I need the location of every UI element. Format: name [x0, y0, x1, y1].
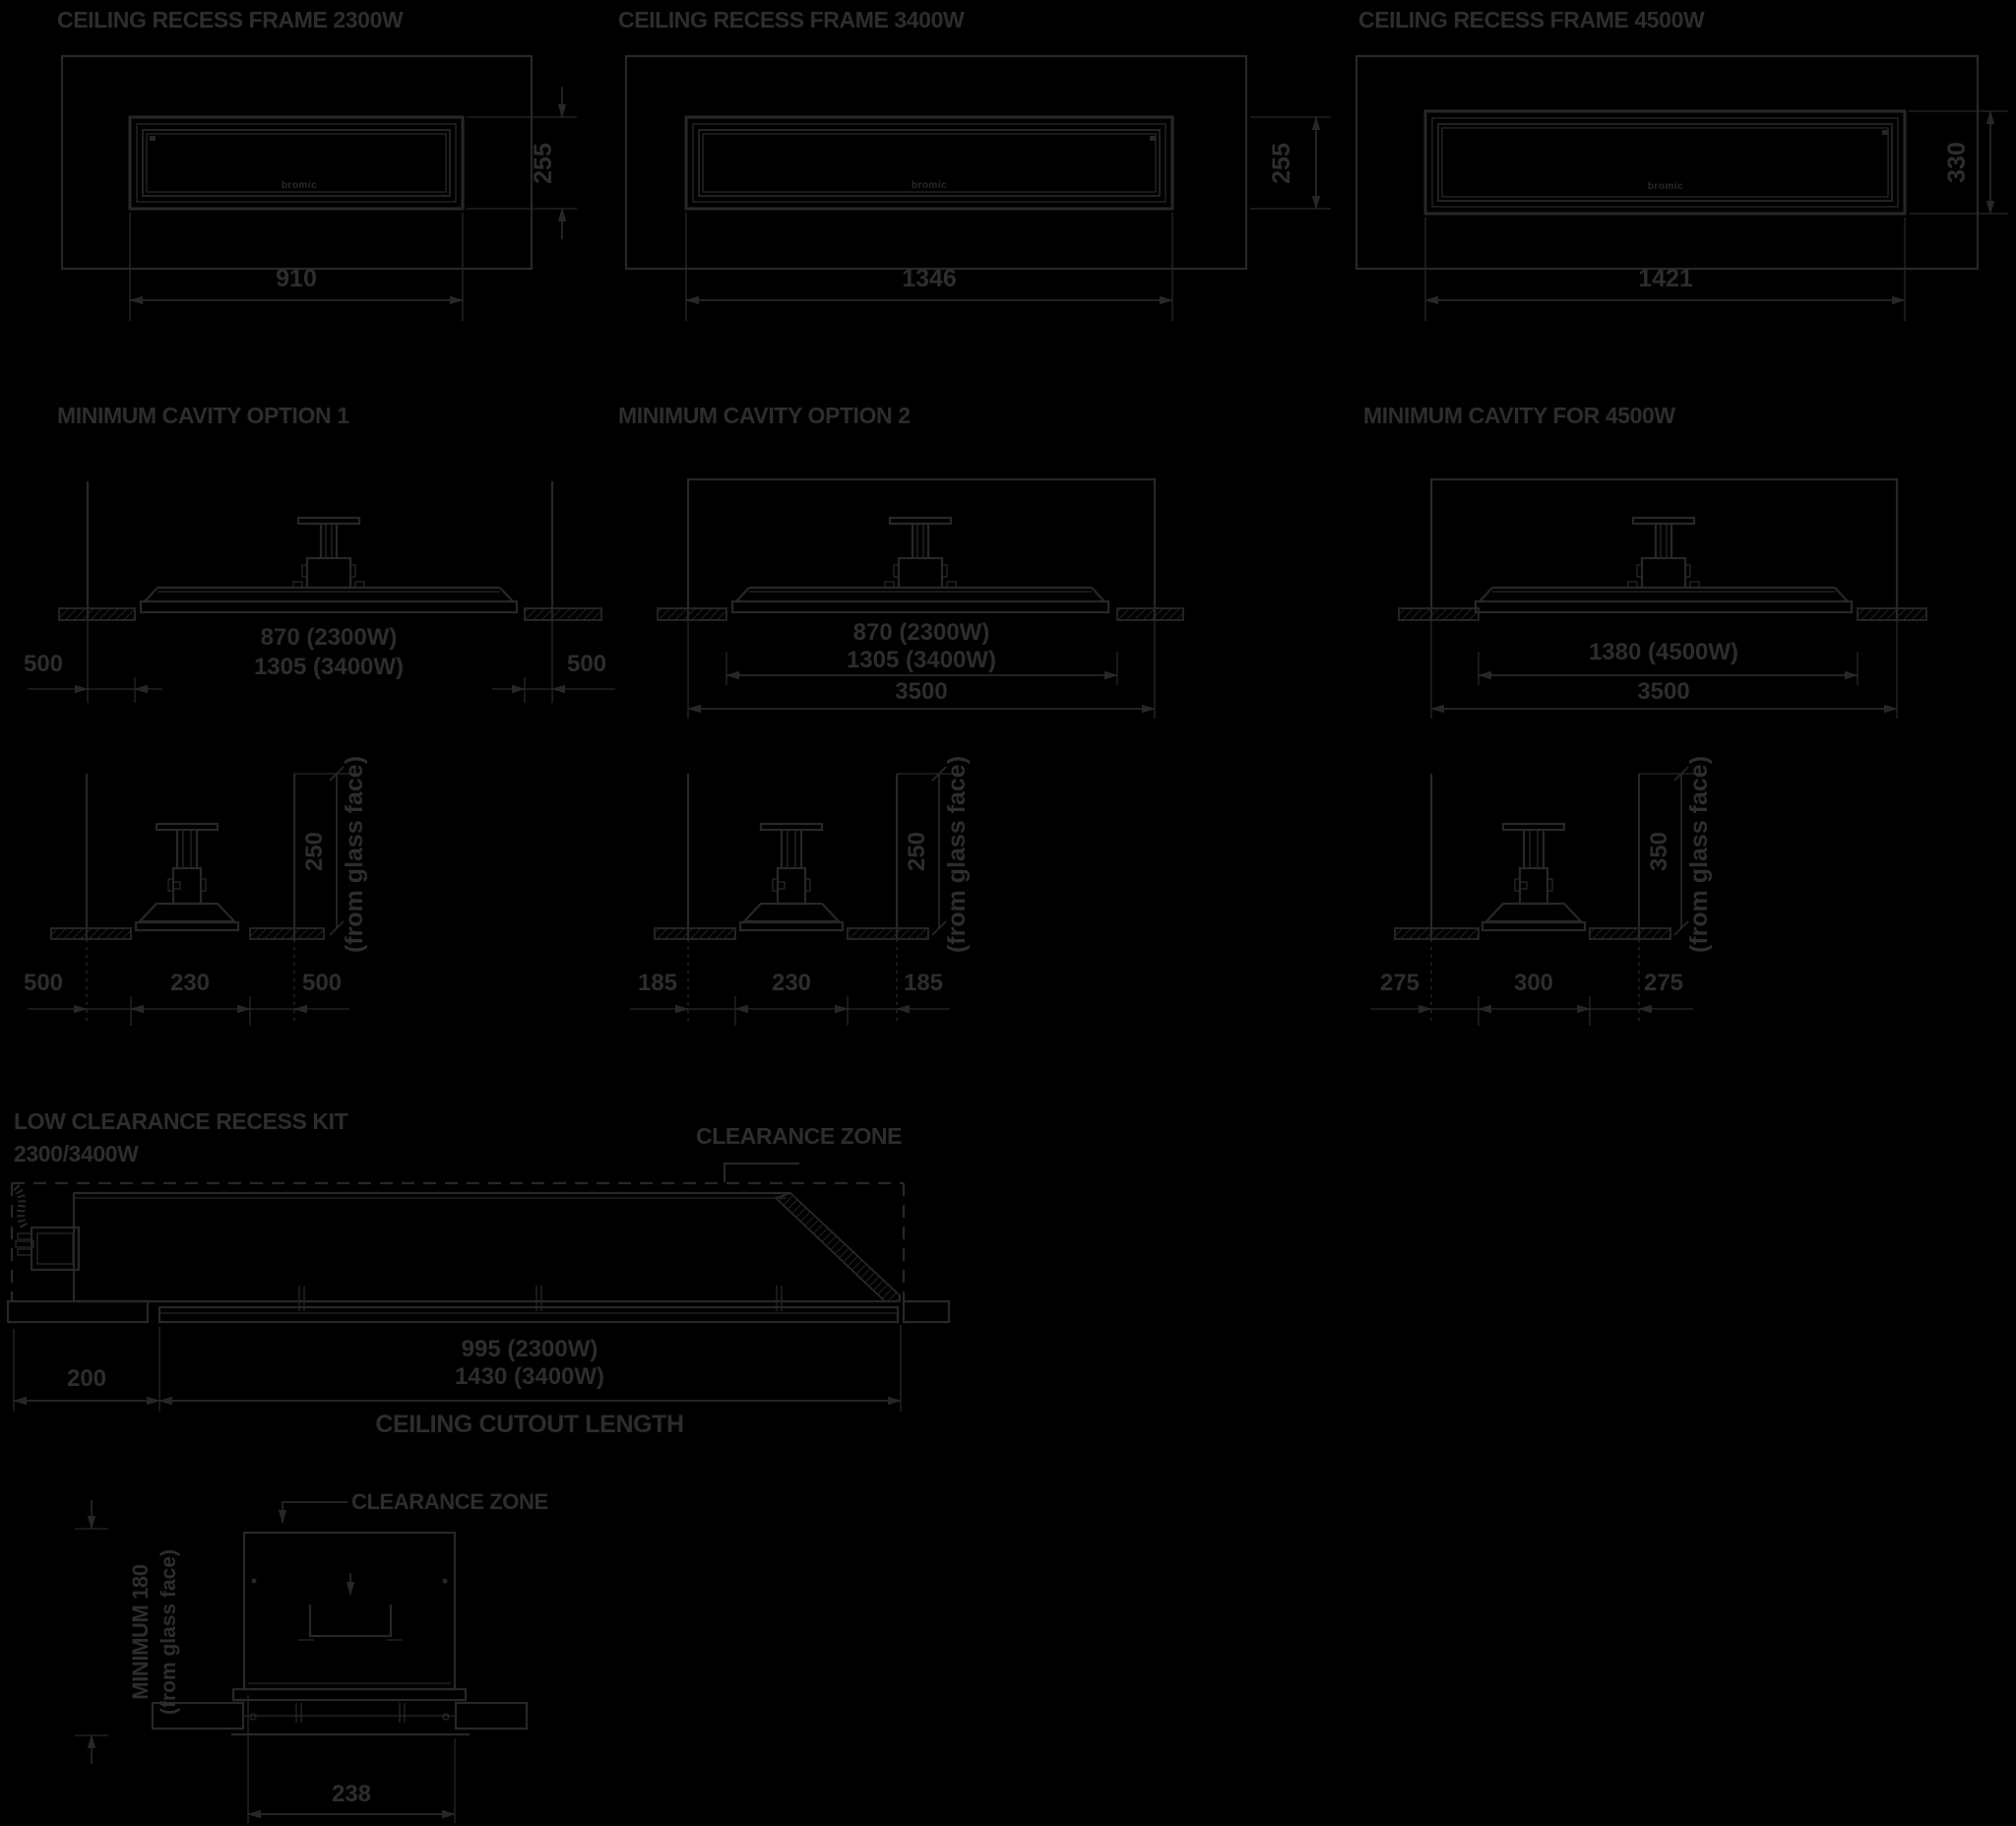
frame-2300-title: CEILING RECESS FRAME 2300W [57, 7, 404, 32]
end-3-right-dim: 275 [1644, 970, 1683, 996]
ceiling-slab [658, 608, 726, 620]
min-height-note: (from glass face) [157, 1549, 180, 1715]
heater-side-outline [141, 518, 517, 612]
cutout-length-b: 1430 (3400W) [455, 1363, 604, 1390]
ceiling-slab [59, 608, 135, 620]
end-3-left-dim: 275 [1380, 970, 1419, 996]
ceiling-slab [8, 1301, 148, 1322]
ceiling-slab [525, 608, 601, 620]
low-clearance-side-view: LOW CLEARANCE RECESS KIT 2300/3400W CLEA… [8, 1108, 949, 1438]
low-clearance-title-line2: 2300/3400W [14, 1141, 139, 1166]
heater-side-outline [1476, 518, 1852, 612]
cavity-box [688, 479, 1155, 620]
bottom-flange [233, 1689, 466, 1700]
end-3-depth-note: (from glass face) [1685, 756, 1713, 953]
ceiling-slab [1117, 608, 1183, 620]
frame-4500-ceiling-panel [1356, 56, 1978, 269]
end-1-middle-dim: 230 [170, 970, 210, 996]
cavity-4500w: MINIMUM CAVITY FOR 4500W 1380 (4500W) 35… [1363, 403, 1926, 719]
recess-enclosure [244, 1533, 455, 1689]
cavity-2-total-dim: 3500 [895, 678, 947, 705]
heater-end-outline [740, 824, 843, 930]
low-clearance-cross-section: CLEARANCE ZONE MINIMUM 180 (from glass f… [75, 1489, 548, 1823]
frame-4500-height-dim: 330 [1943, 142, 1971, 183]
frame-4500-width-dim: 1421 [1638, 265, 1693, 292]
brand-logo: bromic [912, 180, 947, 191]
mount-channel [310, 1605, 391, 1636]
end-3-middle-dim: 300 [1514, 970, 1553, 996]
frame-2300-ceiling-panel [62, 56, 532, 269]
cavity-1-length-a: 870 (2300W) [261, 624, 398, 651]
brand-logo: bromic [1648, 181, 1683, 192]
cavity-box [1431, 479, 1897, 620]
cavity-1-length-b: 1305 (3400W) [254, 654, 404, 680]
heater-side-outline [732, 518, 1108, 612]
cable-gland [18, 1233, 31, 1239]
cavity-2-length-a: 870 (2300W) [853, 619, 990, 646]
end-2-depth-dim: 250 [904, 832, 930, 871]
cavity-1-left-dim: 500 [24, 651, 63, 677]
heater-end-outline [1482, 824, 1585, 930]
indicator-dot [1882, 130, 1888, 135]
cavity-1-title: MINIMUM CAVITY OPTION 1 [57, 403, 349, 428]
end-view-4500w: 350 (from glass face) 275 300 275 [1370, 756, 1713, 1026]
ceiling-slab [1590, 928, 1670, 939]
flex-conduit [16, 1187, 26, 1228]
frame-3400-title: CEILING RECESS FRAME 3400W [618, 7, 965, 32]
end-2-left-dim: 185 [638, 970, 677, 996]
end-2-middle-dim: 230 [772, 970, 811, 996]
ceiling-slab [655, 928, 735, 939]
end-2-depth-note: (from glass face) [943, 756, 971, 953]
end-1-left-dim: 500 [24, 970, 63, 996]
end-3-depth-dim: 350 [1646, 832, 1672, 871]
ceiling-slab [1858, 608, 1926, 620]
indicator-dot [1150, 136, 1156, 141]
end-2-right-dim: 185 [904, 970, 943, 996]
end-view-option-2: 250 (from glass face) 185 230 185 [630, 756, 971, 1026]
ceiling-slab [51, 928, 131, 939]
low-clearance-title-line1: LOW CLEARANCE RECESS KIT [14, 1108, 348, 1134]
frame-diagram-3400w: CEILING RECESS FRAME 3400W bromic 255 13… [618, 7, 1331, 321]
ceiling-slab [848, 928, 928, 939]
cavity-option-2: MINIMUM CAVITY OPTION 2 870 (2300W) 1305… [618, 403, 1183, 719]
ceiling-slab [250, 928, 324, 939]
frame-3400-ceiling-panel [626, 56, 1246, 269]
end-view-option-1: 250 (from glass face) 500 230 500 [24, 756, 368, 1026]
brand-logo: bromic [282, 180, 317, 191]
clearance-zone-leader [283, 1502, 347, 1523]
ceiling-slab [1395, 928, 1479, 939]
clearance-zone-label-2: CLEARANCE ZONE [351, 1489, 548, 1514]
frame-3400-height-dim: 255 [1268, 143, 1295, 184]
frame-2300-height-dim: 255 [530, 143, 557, 184]
ceiling-slab [456, 1703, 527, 1729]
cutout-label: CEILING CUTOUT LENGTH [375, 1411, 683, 1438]
cavity-1-right-dim: 500 [567, 651, 606, 677]
frame-4500-title: CEILING RECESS FRAME 4500W [1358, 7, 1705, 32]
ceiling-slab [904, 1301, 949, 1322]
ceiling-slab [1399, 608, 1479, 620]
glass-face [159, 1307, 898, 1322]
cutout-length-a: 995 (2300W) [462, 1336, 598, 1362]
frame-2300-width-dim: 910 [276, 265, 317, 292]
end-1-right-dim: 500 [302, 970, 342, 996]
heater-end-outline [136, 824, 238, 930]
sloped-end [776, 1193, 900, 1301]
glass-face [243, 1700, 456, 1716]
frame-3400-width-dim: 1346 [902, 265, 957, 292]
cavity-3-length-a: 1380 (4500W) [1589, 639, 1738, 665]
section-markings [296, 1703, 405, 1723]
indicator-dot [150, 136, 156, 141]
frame-diagram-2300w: CEILING RECESS FRAME 2300W bromic 255 91… [57, 7, 577, 321]
cavity-3-total-dim: 3500 [1637, 678, 1689, 705]
cavity-3-title: MINIMUM CAVITY FOR 4500W [1363, 403, 1675, 428]
clearance-zone-leader [724, 1164, 799, 1182]
min-height-dim: MINIMUM 180 [128, 1564, 153, 1700]
cavity-2-length-b: 1305 (3400W) [847, 647, 996, 673]
cavity-2-title: MINIMUM CAVITY OPTION 2 [618, 403, 911, 428]
clearance-zone-label: CLEARANCE ZONE [696, 1123, 902, 1149]
cavity-option-1: MINIMUM CAVITY OPTION 1 870 (2300W) 1305… [24, 403, 615, 703]
offset-dim: 200 [67, 1365, 106, 1392]
end-1-depth-dim: 250 [301, 832, 328, 871]
drawing-canvas: CEILING RECESS FRAME 2300W bromic 255 91… [0, 0, 2016, 1826]
section-width-dim: 238 [332, 1781, 371, 1807]
end-1-depth-note: (from glass face) [341, 756, 368, 953]
frame-diagram-4500w: CEILING RECESS FRAME 4500W bromic 330 14… [1356, 7, 2008, 321]
